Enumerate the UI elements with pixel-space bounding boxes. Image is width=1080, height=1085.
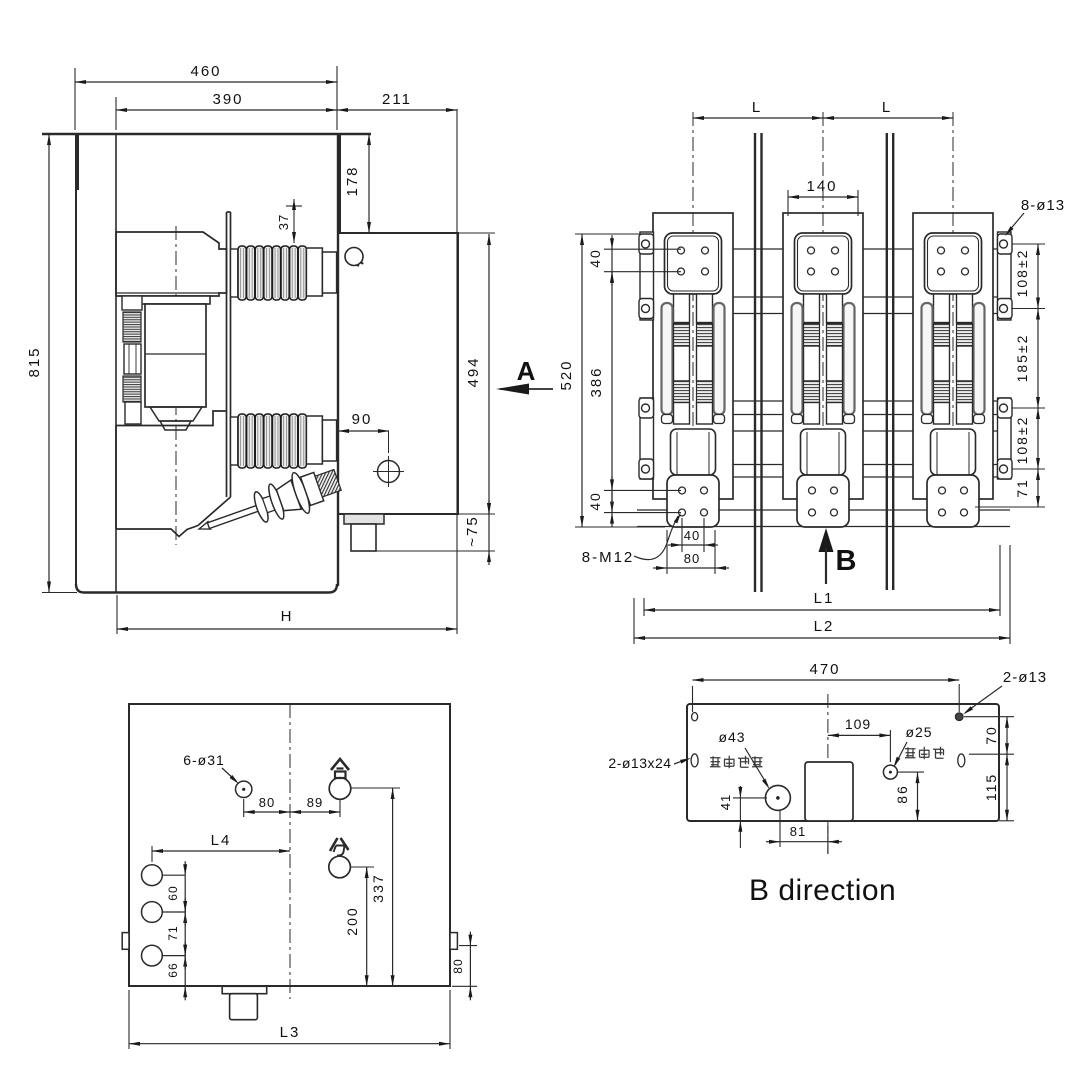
svg-text:185±2: 185±2 bbox=[1014, 334, 1030, 383]
svg-text:40: 40 bbox=[587, 248, 603, 268]
svg-text:66: 66 bbox=[166, 962, 180, 977]
svg-text:L3: L3 bbox=[280, 1024, 301, 1041]
svg-text:ø43: ø43 bbox=[718, 729, 745, 745]
svg-text:L4: L4 bbox=[211, 832, 232, 849]
svg-text:494: 494 bbox=[465, 356, 482, 387]
svg-text:211: 211 bbox=[382, 91, 412, 108]
svg-text:~75: ~75 bbox=[464, 515, 481, 546]
svg-text:70: 70 bbox=[983, 725, 999, 745]
svg-text:86: 86 bbox=[894, 784, 910, 804]
svg-text:6-ø31: 6-ø31 bbox=[183, 752, 225, 768]
svg-text:L2: L2 bbox=[814, 618, 835, 635]
svg-text:460: 460 bbox=[190, 63, 221, 80]
svg-text:ø25: ø25 bbox=[905, 724, 932, 740]
svg-text:71: 71 bbox=[1014, 478, 1030, 498]
svg-text:108±2: 108±2 bbox=[1014, 249, 1030, 298]
svg-text:81: 81 bbox=[790, 824, 806, 839]
svg-text:80: 80 bbox=[451, 958, 465, 973]
svg-text:L1: L1 bbox=[814, 590, 835, 607]
svg-text:80: 80 bbox=[684, 551, 700, 566]
svg-text:H: H bbox=[281, 608, 294, 625]
svg-text:40: 40 bbox=[587, 491, 603, 511]
svg-text:37: 37 bbox=[276, 214, 291, 230]
svg-text:2-ø13x24: 2-ø13x24 bbox=[608, 755, 671, 771]
svg-text:89: 89 bbox=[307, 795, 323, 810]
svg-text:60: 60 bbox=[166, 885, 180, 900]
svg-text:337: 337 bbox=[370, 873, 386, 902]
svg-text:178: 178 bbox=[344, 165, 361, 196]
svg-text:200: 200 bbox=[344, 906, 360, 935]
svg-text:470: 470 bbox=[809, 661, 840, 678]
svg-text:40: 40 bbox=[684, 528, 700, 543]
svg-text:115: 115 bbox=[983, 773, 999, 801]
svg-text:2-ø13: 2-ø13 bbox=[1003, 669, 1047, 686]
svg-text:B direction: B direction bbox=[749, 874, 896, 907]
svg-text:L: L bbox=[882, 99, 892, 116]
svg-text:A: A bbox=[517, 356, 536, 386]
svg-text:B: B bbox=[836, 545, 857, 577]
svg-text:80: 80 bbox=[259, 795, 275, 810]
svg-text:520: 520 bbox=[558, 359, 575, 390]
svg-text:L: L bbox=[752, 99, 762, 116]
svg-text:41: 41 bbox=[718, 794, 733, 810]
svg-text:815: 815 bbox=[26, 346, 43, 377]
svg-text:390: 390 bbox=[212, 91, 243, 108]
svg-text:8-M12: 8-M12 bbox=[582, 549, 635, 566]
svg-text:90: 90 bbox=[352, 411, 373, 428]
svg-text:386: 386 bbox=[588, 366, 605, 397]
svg-text:108±2: 108±2 bbox=[1014, 416, 1030, 465]
svg-text:140: 140 bbox=[806, 178, 837, 195]
svg-text:71: 71 bbox=[166, 925, 180, 940]
svg-text:8-ø13: 8-ø13 bbox=[1021, 197, 1065, 214]
svg-text:109: 109 bbox=[845, 716, 871, 732]
